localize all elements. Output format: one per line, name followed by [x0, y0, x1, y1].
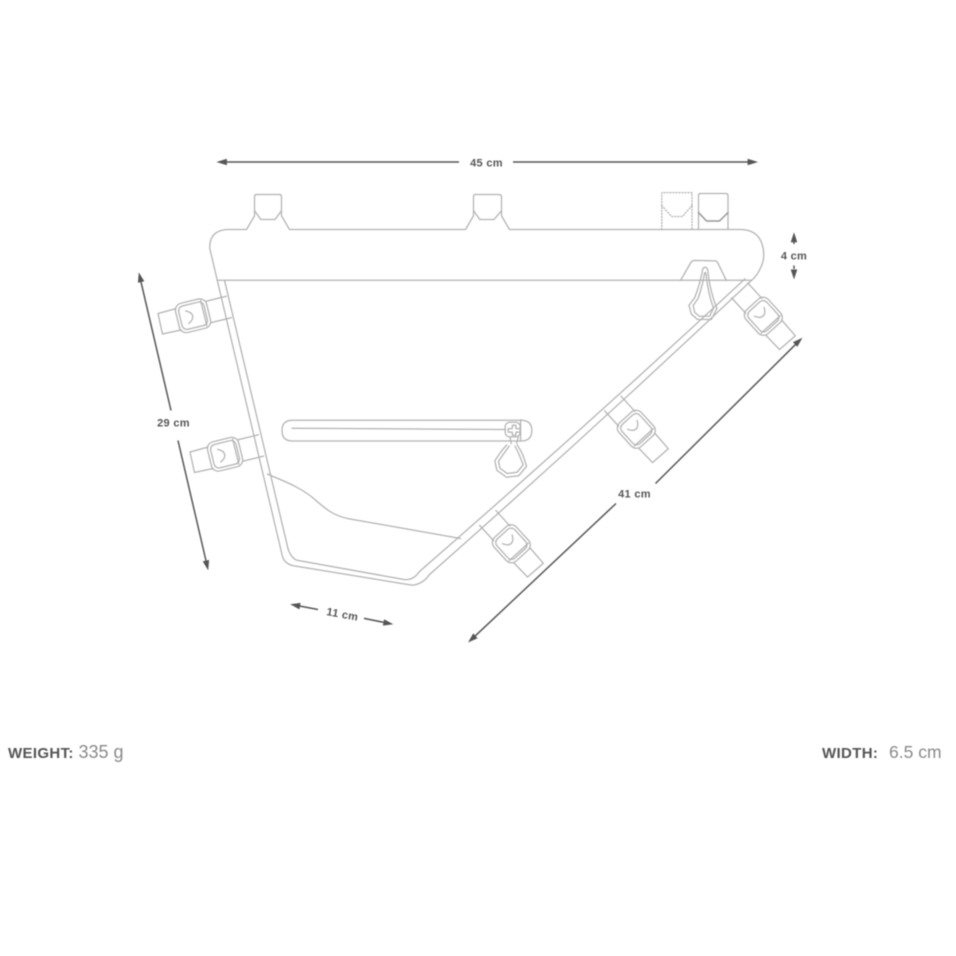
svg-text:41 cm: 41 cm — [618, 489, 651, 501]
svg-text:45 cm: 45 cm — [470, 157, 503, 169]
svg-text:29 cm: 29 cm — [157, 418, 190, 430]
svg-text:6.5 cm: 6.5 cm — [889, 742, 942, 762]
svg-text:335 g: 335 g — [79, 742, 124, 762]
svg-text:4 cm: 4 cm — [781, 251, 807, 263]
svg-text:WIDTH:: WIDTH: — [822, 745, 878, 762]
svg-text:WEIGHT:: WEIGHT: — [8, 745, 74, 762]
